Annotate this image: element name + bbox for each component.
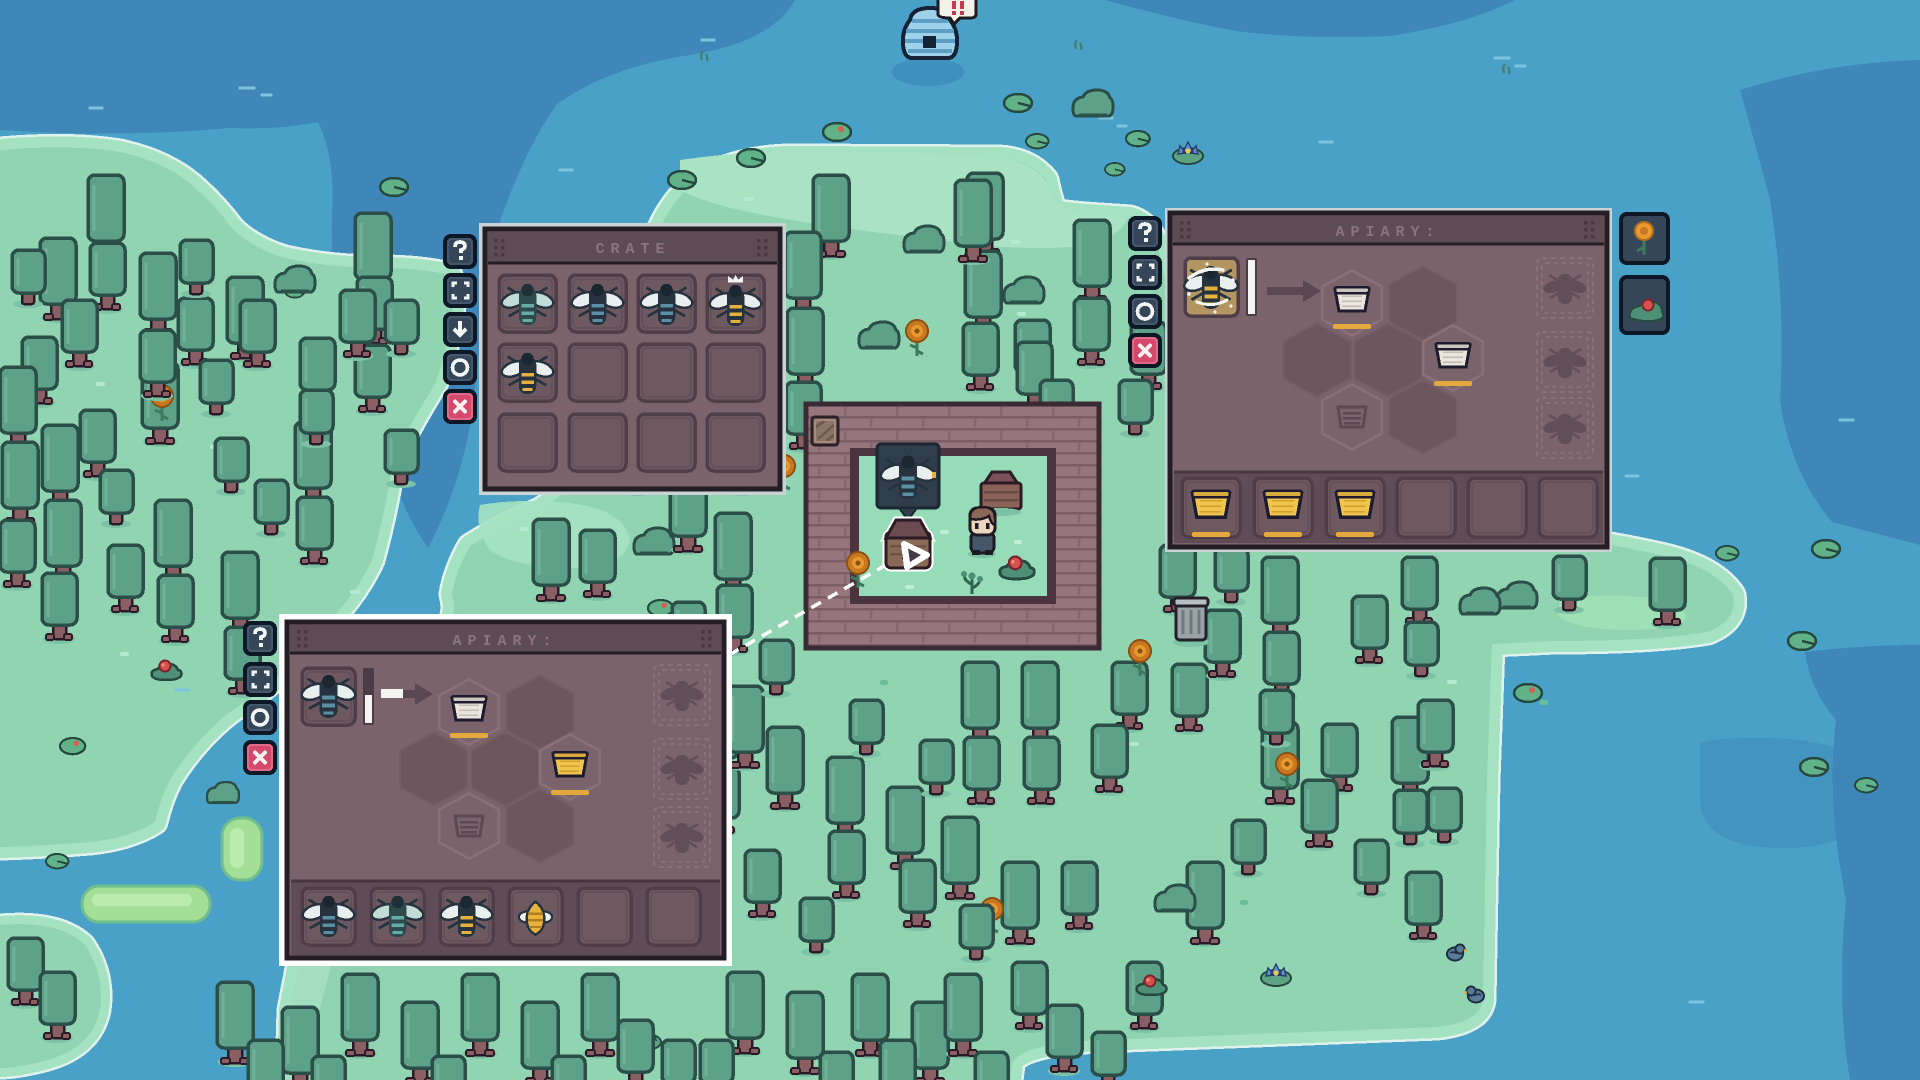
- svg-text:APIARY:: APIARY:: [1335, 224, 1440, 241]
- svg-text:CRATE: CRATE: [595, 241, 670, 258]
- svg-text:APIARY:: APIARY:: [452, 633, 557, 650]
